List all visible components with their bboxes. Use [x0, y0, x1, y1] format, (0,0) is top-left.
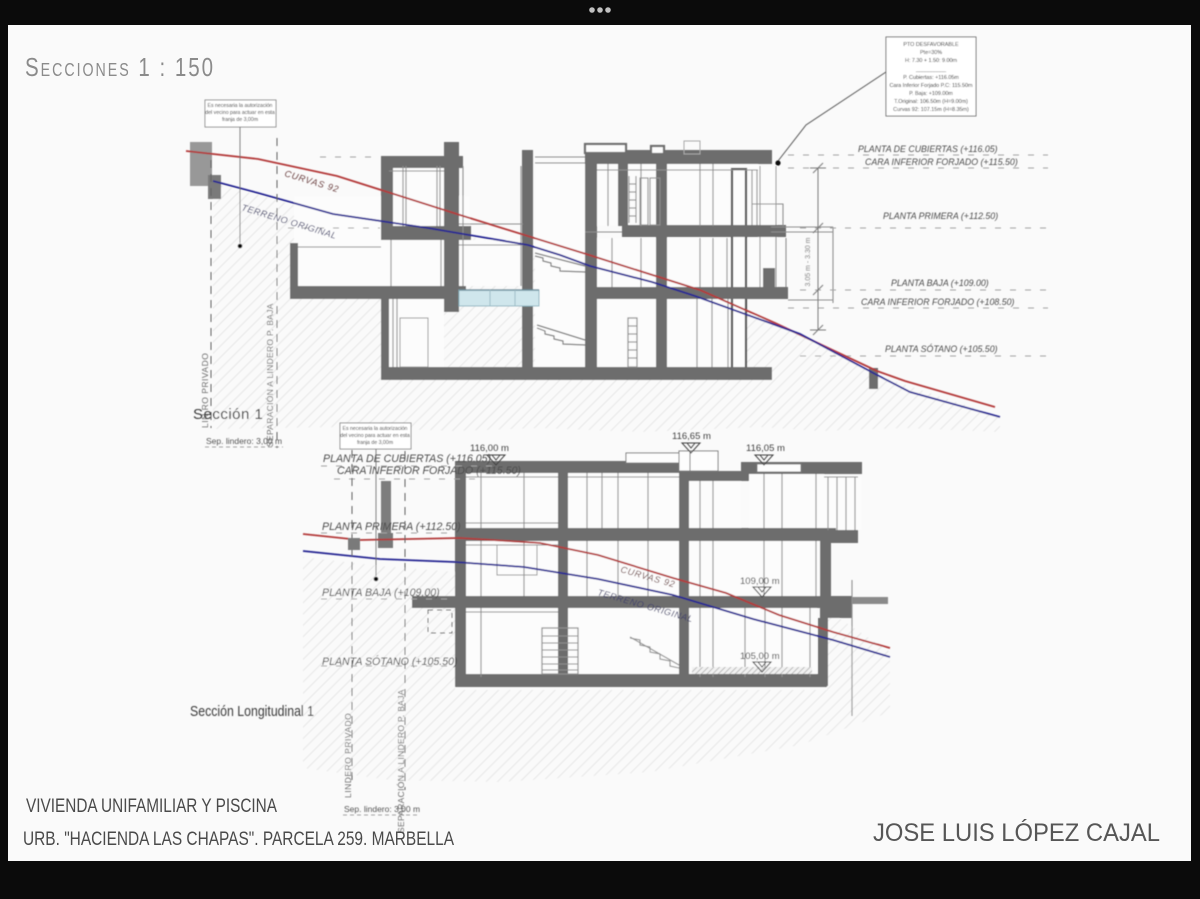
svg-text:Sección Longitudinal 1: Sección Longitudinal 1 [190, 703, 314, 720]
svg-text:franja de 3,00m: franja de 3,00m [222, 117, 258, 123]
svg-text:PLANTA SÓTANO (+105.50): PLANTA SÓTANO (+105.50) [885, 344, 998, 354]
svg-text:PLANTA DE CUBIERTAS (+116.05): PLANTA DE CUBIERTAS (+116.05) [858, 144, 998, 154]
svg-text:109,00 m: 109,00 m [740, 576, 780, 587]
svg-text:PLANTA BAJA (+109.00): PLANTA BAJA (+109.00) [891, 278, 989, 288]
svg-text:__________: __________ [915, 67, 947, 73]
svg-text:H: 7.30 + 1.50: 9.00m: H: 7.30 + 1.50: 9.00m [905, 58, 958, 64]
svg-text:JOSE LUIS LÓPEZ CAJAL: JOSE LUIS LÓPEZ CAJAL [873, 818, 1160, 847]
svg-text:PLANTA SÓTANO (+105.50): PLANTA SÓTANO (+105.50) [322, 655, 458, 668]
svg-text:CARA INFERIOR FORJADO (+115.50: CARA INFERIOR FORJADO (+115.50) [337, 465, 521, 477]
svg-text:3.05 m - 3.30 m: 3.05 m - 3.30 m [805, 237, 812, 286]
svg-text:PTO DESFAVORABLE: PTO DESFAVORABLE [903, 42, 959, 48]
svg-text:Es necesaria la autorización: Es necesaria la autorización [208, 103, 273, 109]
svg-text:del vecino para actuar en esta: del vecino para actuar en esta [205, 110, 275, 116]
svg-text:del vecino para actuar en esta: del vecino para actuar en esta [340, 433, 410, 439]
svg-text:PLANTA BAJA (+109.00): PLANTA BAJA (+109.00) [322, 587, 440, 599]
svg-text:Cara Inferior Forjado P.C: 115: Cara Inferior Forjado P.C: 115.50m [889, 83, 973, 89]
svg-text:franja de 3,00m: franja de 3,00m [357, 440, 393, 446]
svg-text:CARA INFERIOR FORJADO (+108.50: CARA INFERIOR FORJADO (+108.50) [861, 297, 1014, 307]
svg-text:Sep. lindero: 3,00 m: Sep. lindero: 3,00 m [206, 436, 282, 446]
svg-text:116,05 m: 116,05 m [746, 443, 785, 454]
svg-text:SEPARACIÓN A LINDERO P. BAJA: SEPARACIÓN A LINDERO P. BAJA [265, 303, 275, 447]
svg-text:PLANTA DE CUBIERTAS (+116.05): PLANTA DE CUBIERTAS (+116.05) [323, 453, 491, 465]
svg-text:CARA INFERIOR FORJADO (+115.50: CARA INFERIOR FORJADO (+115.50) [865, 157, 1018, 167]
svg-text:Sep. lindero: 3,00 m: Sep. lindero: 3,00 m [344, 804, 420, 814]
svg-text:116,65 m: 116,65 m [672, 431, 711, 442]
svg-text:PLANTA PRIMERA (+112.50): PLANTA PRIMERA (+112.50) [883, 211, 998, 221]
svg-text:P. Cubiertas: +116.05m: P. Cubiertas: +116.05m [903, 75, 959, 81]
svg-text:105,00 m: 105,00 m [740, 651, 780, 662]
svg-text:T.Original: 106.50m (H=9.00m): T.Original: 106.50m (H=9.00m) [894, 99, 968, 105]
svg-text:Pte=30%: Pte=30% [920, 50, 942, 56]
svg-text:Sección 1: Sección 1 [193, 406, 263, 423]
svg-text:VIVIENDA UNIFAMILIAR Y PISCINA: VIVIENDA UNIFAMILIAR Y PISCINA [26, 795, 277, 817]
svg-text:Es necesaria la autorización: Es necesaria la autorización [343, 426, 408, 432]
svg-text:Curvas 92: 107.15m (H=8.35m): Curvas 92: 107.15m (H=8.35m) [893, 107, 969, 113]
svg-text:P. Baja: +109.00m: P. Baja: +109.00m [909, 91, 953, 97]
svg-text:PLANTA PRIMERA (+112.50): PLANTA PRIMERA (+112.50) [322, 521, 461, 533]
svg-text:Secciones 1 : 150: Secciones 1 : 150 [25, 52, 215, 82]
svg-text:116,00 m: 116,00 m [470, 443, 509, 454]
svg-text:URB. "HACIENDA LAS CHAPAS". PA: URB. "HACIENDA LAS CHAPAS". PARCELA 259.… [23, 828, 454, 850]
svg-text:LINDERO PRIVADO: LINDERO PRIVADO [343, 713, 353, 798]
